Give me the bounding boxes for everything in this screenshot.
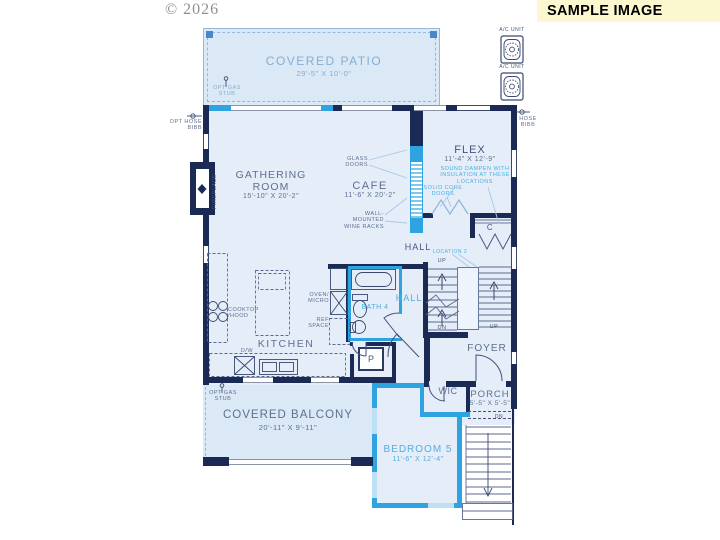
hall-bedroom-door xyxy=(388,334,419,357)
fireplace-note: FIREPLACE xyxy=(212,167,218,215)
covered-balcony-label: COVERED BALCONY xyxy=(205,409,371,423)
bath4-label: BATH 4 xyxy=(352,304,398,312)
hall-lower-label: HALL xyxy=(389,293,429,304)
dishwasher-note: D/W xyxy=(236,348,258,354)
flex-double-doors xyxy=(432,200,468,214)
kitchen-island xyxy=(256,271,290,336)
ac-unit-1-label: A/C UNIT xyxy=(494,28,530,34)
entry-door xyxy=(476,355,502,381)
porch-dims: 5'-5" X 5'-5" xyxy=(466,400,514,408)
bedroom5-label: BEDROOM 5 xyxy=(377,444,459,456)
ref-space-box xyxy=(330,319,350,345)
covered-balcony-dims: 20'-11" X 9'-11" xyxy=(205,424,371,433)
copyright-text: © 2026 xyxy=(165,1,219,19)
bedroom5-dims: 11'-6" X 12'-4" xyxy=(377,456,459,464)
covered-patio-label: COVERED PATIO xyxy=(244,54,404,68)
sound-dampen-note: SOUND DAMPEN WITH INSULATION AT THESE LO… xyxy=(430,166,520,185)
kitchen-label: KITCHEN xyxy=(246,338,326,350)
porch-dn-label: DN xyxy=(489,415,509,421)
solid-core-doors-note: SOLID CORE DOORS xyxy=(422,185,464,198)
patio-gas-stub-note: OPT GAS STUB xyxy=(205,85,249,98)
door-swings xyxy=(352,313,502,401)
fireplace-diamond xyxy=(198,184,207,194)
plan-linework xyxy=(0,0,720,540)
hose-bibb-note: HOSE BIBB xyxy=(514,116,542,129)
banner-label: SAMPLE IMAGE xyxy=(537,3,663,19)
stair-chase xyxy=(458,268,479,330)
pantry-door xyxy=(352,342,366,356)
closet-label: C xyxy=(481,223,499,232)
foyer-label: FOYER xyxy=(462,343,512,355)
wine-racks-note: WALL-MOUNTED WINE RACKS xyxy=(334,211,384,230)
sample-image-banner: SAMPLE IMAGE xyxy=(537,0,720,22)
porch-label: PORCH xyxy=(466,389,514,400)
flex-dims: 11'-4" X 12'-9" xyxy=(435,156,505,164)
oven-micro-note: OVEN/ MICRO xyxy=(304,292,329,305)
kitchen-sink xyxy=(260,360,298,375)
opt-hose-bibb-note: OPT HOSE BIBB xyxy=(158,119,202,132)
wic-label: WIC xyxy=(431,386,465,397)
stair-up-label: UP xyxy=(483,324,505,330)
stair-treads xyxy=(426,267,511,330)
stair-up-label: UP xyxy=(431,258,453,264)
stair-dn-label: DN xyxy=(431,325,453,331)
ref-space-note: REF SPACE xyxy=(304,317,329,330)
cabinet xyxy=(331,269,348,290)
exterior-stairs xyxy=(462,425,513,520)
bath4-door xyxy=(384,313,399,337)
covered-patio-dims: 29'-5" X 10'-0" xyxy=(244,70,404,79)
glass-doors-note: GLASS DOORS xyxy=(338,156,368,169)
gathering-room-label: GATHERING ROOM xyxy=(226,169,316,194)
balcony-gas-stub-note: OPT GAS STUB xyxy=(201,390,245,403)
floorplan-canvas: © 2026 SAMPLE IMAGE A/C UNIT A/C UNIT xyxy=(0,0,720,540)
location-2-note: LOCATION 2 xyxy=(427,250,473,256)
cafe-dims: 11'-6" X 20'-2" xyxy=(330,192,410,200)
cooktop-note: COOKTOP /HOOD xyxy=(228,307,264,320)
gathering-room-dims: 15'-10" X 20'-2" xyxy=(226,193,316,201)
toilet-tank xyxy=(353,295,368,301)
ac-unit-2-label: A/C UNIT xyxy=(494,65,530,71)
